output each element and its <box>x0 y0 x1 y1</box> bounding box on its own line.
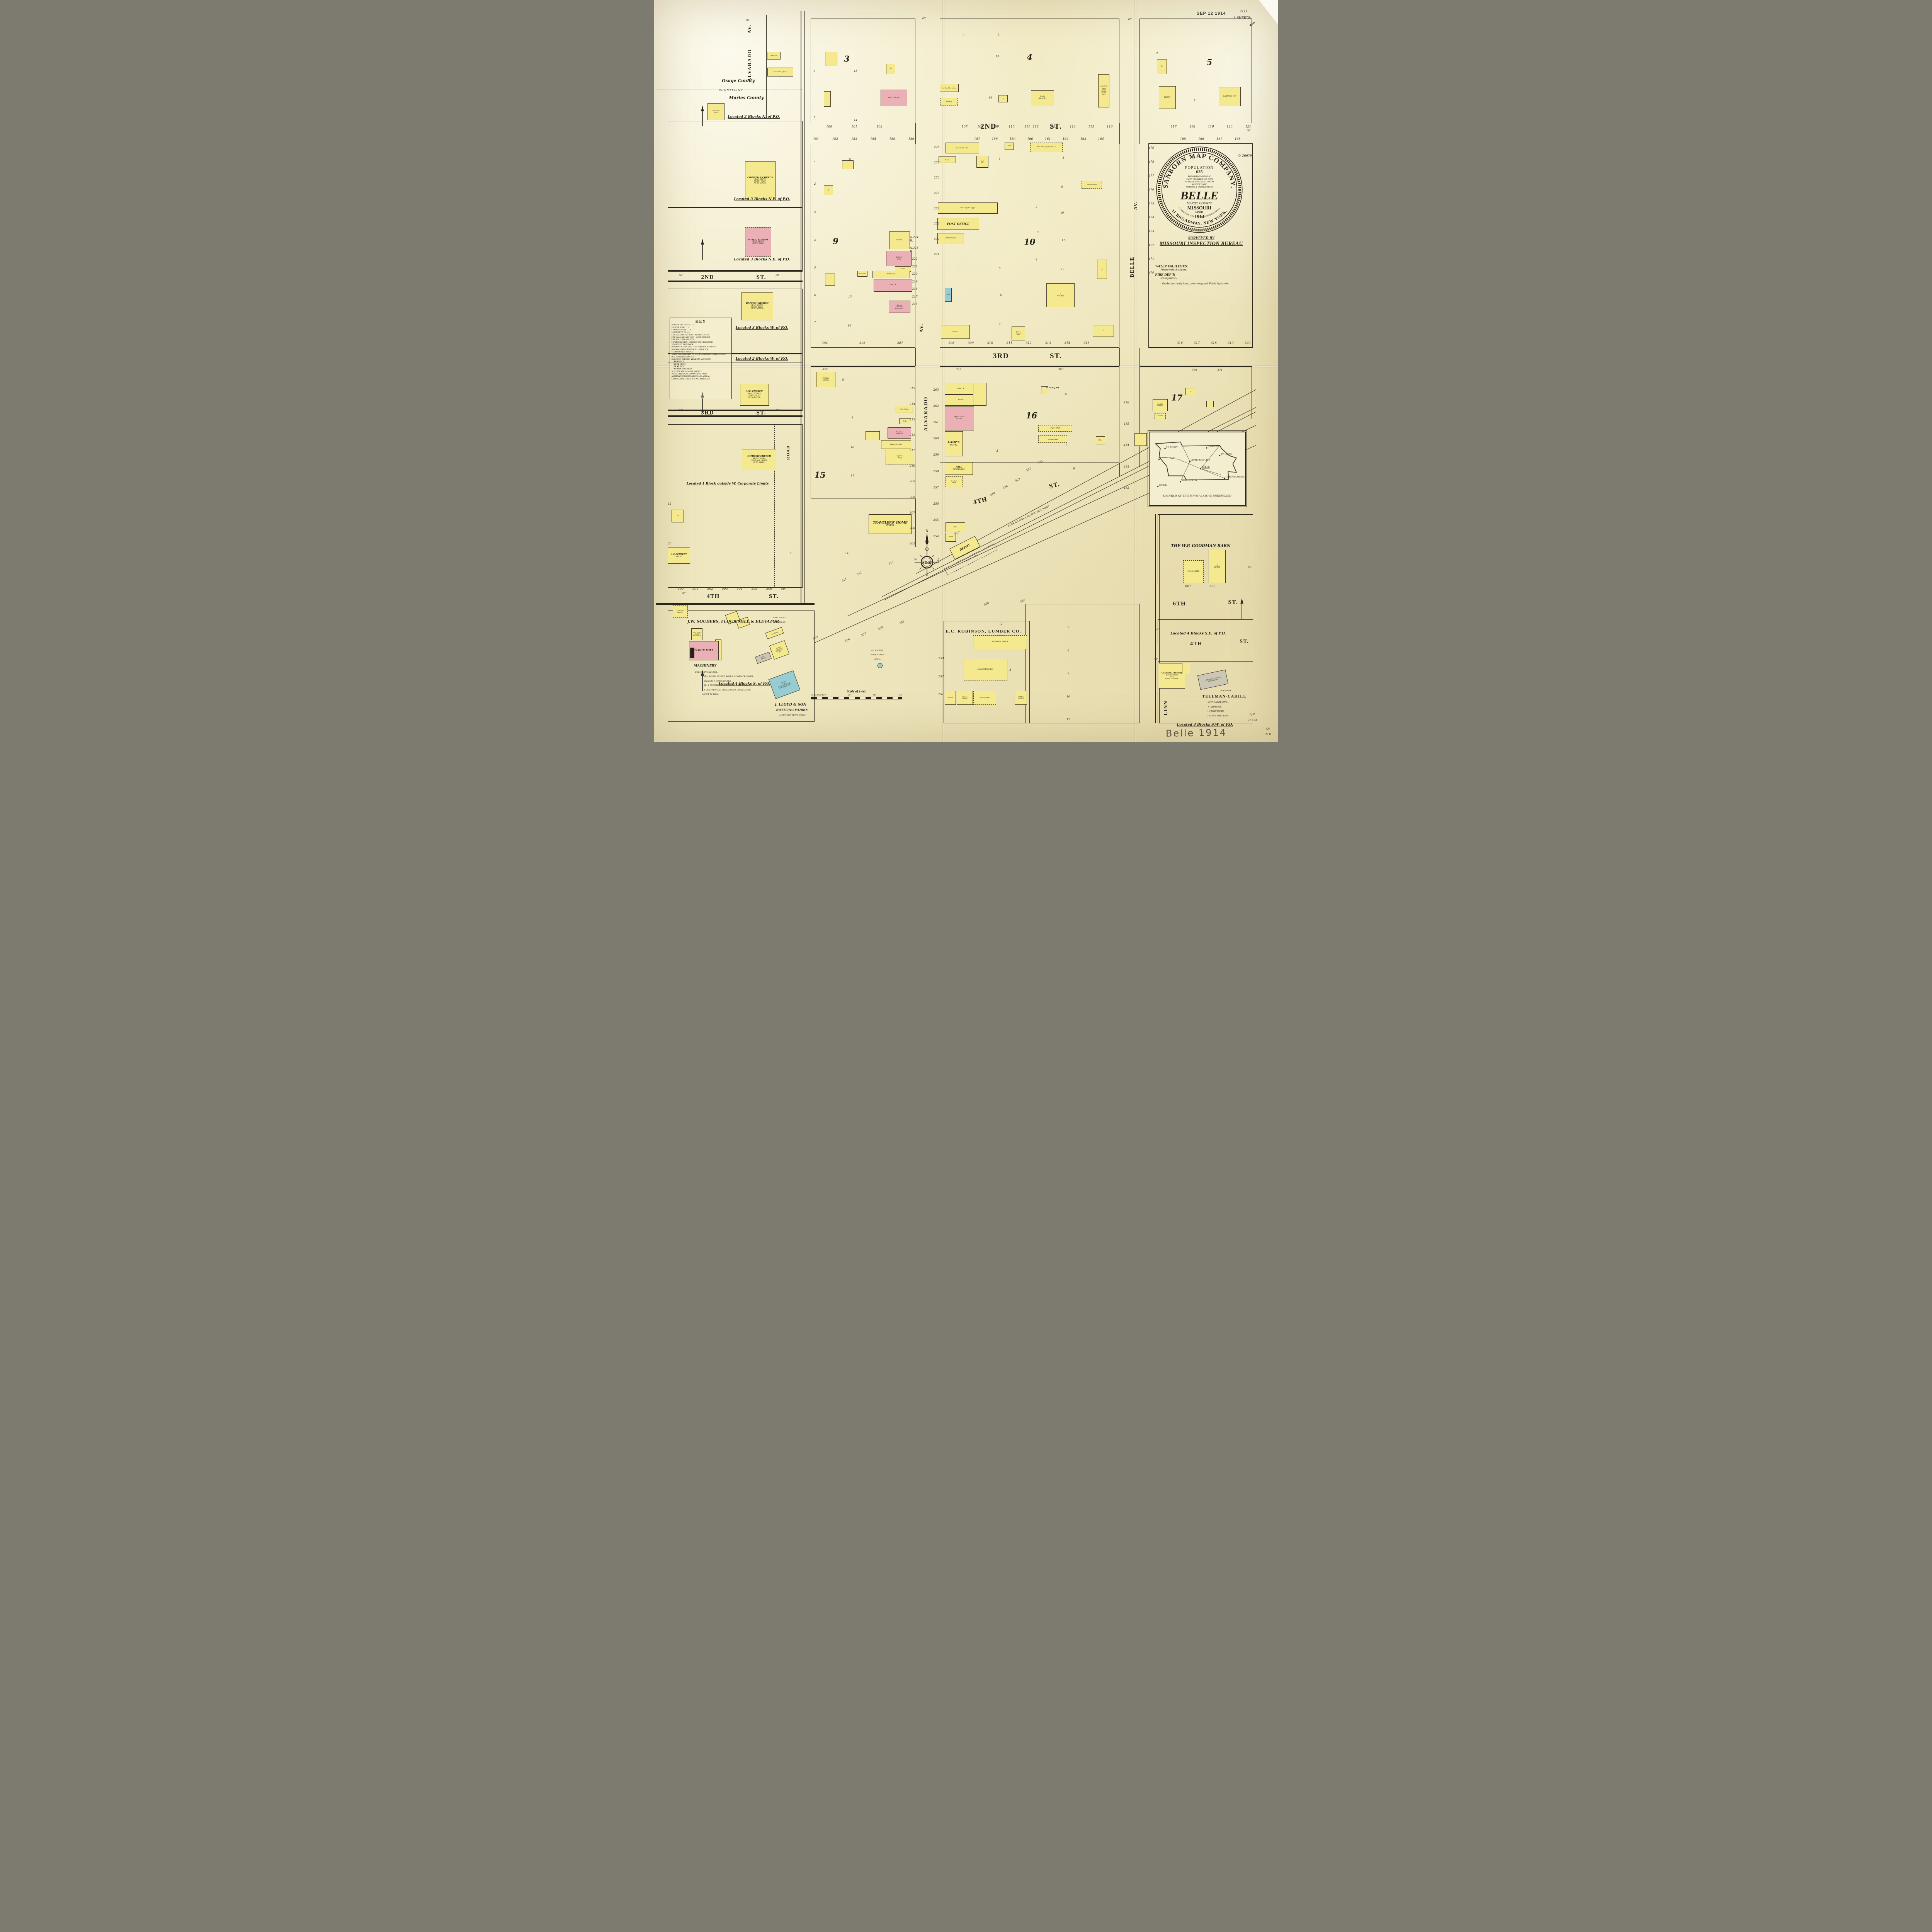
street-number: 412 <box>1124 486 1129 490</box>
lot-number: 13 <box>667 542 671 545</box>
street-number-row: 157158159160161162163164 <box>974 137 1104 143</box>
building: Gen'l S. Ware Ho. <box>946 143 979 154</box>
map-label: 526 <box>1266 728 1270 731</box>
stamp-note: NO STEAM & NO HAND ENGINE <box>1184 181 1214 183</box>
lot-number: 2 <box>814 182 816 185</box>
street-number: 152 <box>832 137 838 143</box>
survey-bureau: MISSOURI INSPECTION BUREAU <box>1153 240 1250 247</box>
street-number: 216 <box>912 302 917 306</box>
building: CARRIAGE HO. <box>1219 87 1241 106</box>
sixty-foot-mark: 60' <box>746 19 750 22</box>
building-label: Bl.Sm. <box>1099 440 1103 441</box>
street-number: 318 <box>1211 341 1216 347</box>
building-label: 2 Hardware <box>946 238 956 240</box>
building: PUBLIC SCHOOLHEAT: STOVE-LIGHT: ELEC.- <box>745 227 771 257</box>
building: CITY LIGHTPLANTDYN.35 K.W. <box>691 628 702 640</box>
building-label: W.Ho <box>897 259 901 260</box>
building-label: Dwgs. <box>952 482 956 483</box>
building-label: LIGHT: ELEC.- <box>752 243 765 245</box>
map-label: 1-CENTRIFUGAL REEL, 2 DUST COLLECTORS, <box>704 689 752 691</box>
building-label: D <box>890 68 891 70</box>
key-footer-line: CONSECUTIVE STREET NO'S ARE ARBITRARY <box>672 378 730 381</box>
compass-rose: N S&M W E S <box>913 529 941 576</box>
building-label: B.Sm. Shop Impl't Storage 2ᴰ <box>1037 146 1056 148</box>
surveyed-by-label: SURVEYED BY <box>1153 236 1250 240</box>
street-number: 259 <box>933 453 939 456</box>
building: Pool <box>946 522 966 532</box>
building-label: Gen'l S. <box>956 418 963 420</box>
street-line <box>915 123 916 144</box>
sixty-foot-mark: 60' <box>776 274 779 277</box>
map-label: 27 B <box>1265 733 1271 736</box>
building: Gen'l S. <box>941 325 969 339</box>
stamp-county: MARIES COUNTY <box>1187 201 1213 205</box>
street-number: 306 <box>859 341 865 347</box>
building-label: P L A T F O R M <box>964 555 978 563</box>
map-label: ROAD <box>786 445 791 460</box>
inset-city: ST. LOUIS <box>1221 453 1232 456</box>
lot-number: 11 <box>851 474 854 477</box>
block-number: 3 <box>844 54 850 63</box>
building-label: CAMP'S <box>948 441 959 444</box>
street-number: 218 <box>912 287 917 291</box>
scale-mark: 150 <box>898 694 901 696</box>
street-number-column: 215214213212211210209208207206205 <box>907 386 917 545</box>
block-outline <box>1158 514 1253 583</box>
street-number: 316 <box>1177 341 1183 347</box>
building: WashHo. <box>976 156 988 168</box>
map-label: ST. <box>757 274 766 281</box>
street-number-column: 479478477476475474473472471470 <box>1146 146 1156 274</box>
sixty-foot-mark: 60' <box>1155 628 1159 631</box>
building-label: D <box>1161 66 1162 68</box>
lot-number: 14 <box>845 552 849 555</box>
street-number: 212 <box>910 433 915 437</box>
street-number: 158 <box>992 137 998 143</box>
lot-number: 1 <box>814 160 816 163</box>
map-label: AV. <box>747 24 753 33</box>
building: Printing <box>940 98 958 105</box>
street-line <box>1155 514 1156 723</box>
north-arrow <box>699 670 706 691</box>
map-label: 322 <box>1026 467 1032 472</box>
building: LUMBER SHED <box>973 635 1027 649</box>
street-number: 251 <box>938 692 944 696</box>
building-label: LIVERY <box>1214 566 1220 568</box>
map-label: ✓ <box>1248 19 1257 31</box>
street-number-row: 316317318319320 <box>1177 341 1251 347</box>
building-label: OFFICE <box>947 697 953 699</box>
street-number: 507 <box>781 587 787 593</box>
street-number: 504 <box>737 587 743 593</box>
building-label: D <box>828 189 829 191</box>
map-label: 1ST: 4 DOUBLESTAND ROLLS, 1-CORN CRUSHER… <box>702 675 754 678</box>
building <box>690 648 694 658</box>
building-label: Impl't Shed <box>1051 427 1060 429</box>
lot-number: 11 <box>1066 718 1070 721</box>
building-label: B.& S. <box>945 159 950 161</box>
block-number: 17 <box>1171 393 1182 403</box>
building-label: D <box>677 515 678 517</box>
building-label: Ware Ho. <box>770 55 777 56</box>
fire-dept-value: not organized.- <box>1160 277 1248 280</box>
map-label: ST. <box>1048 480 1061 490</box>
map-label: AV. <box>1133 201 1139 210</box>
map-label: J.W. SOUDERS, FLOUR MILL & ELEVATOR <box>687 619 779 624</box>
building: PrintingOffices <box>816 372 835 387</box>
map-label: MOUNTAIN MIN'L WATER- <box>779 714 807 716</box>
street-number: 477 <box>1148 174 1154 177</box>
compass-w: W <box>914 558 917 561</box>
lot-number: 5 <box>814 266 816 269</box>
lot-number: 9 <box>1061 185 1063 189</box>
lot-number: 3 <box>1009 668 1011 672</box>
lot-number: 7 <box>999 323 1000 326</box>
map-label: R.I.& P. R.R. <box>871 650 883 652</box>
street-line <box>801 11 801 604</box>
building-label: Barber <box>903 421 908 422</box>
block-number: 5 <box>1207 58 1213 67</box>
street-line <box>656 603 814 605</box>
street-number: 117 <box>1171 125 1177 131</box>
building: 2 <box>1206 401 1214 407</box>
street-number: 315 <box>1083 341 1089 347</box>
street-number: 319 <box>1228 341 1233 347</box>
street-number: 108 <box>977 125 983 131</box>
lot-number: 2 <box>1036 206 1037 209</box>
building-label: W.Ho. <box>901 268 905 270</box>
street-line <box>1159 514 1160 723</box>
lot-number: 2 <box>1001 622 1002 626</box>
lot-number: 6 <box>1065 393 1066 396</box>
street-number: 157 <box>974 137 980 143</box>
building-label: Pool <box>954 526 957 528</box>
building-label: D <box>1190 391 1191 393</box>
street-number: 110 <box>1009 125 1014 131</box>
building: D <box>1093 325 1114 337</box>
map-label: 4TH <box>972 495 988 506</box>
building-label: D <box>1002 98 1003 99</box>
facilities-block: WATER FACILITIES: Private wells & cister… <box>1155 264 1248 285</box>
building-label: BUGGY SHED <box>1188 571 1199 573</box>
map-label: Located 2 Blocks W. of P.O. <box>736 357 788 361</box>
building-label: PRINT'G <box>677 612 683 613</box>
street-line <box>1119 463 1120 476</box>
street-number: 475 <box>1148 202 1154 205</box>
building-label: Harness Shop <box>1087 184 1097 185</box>
map-label: ALVARADO <box>923 396 929 431</box>
map-label: Maries County <box>729 95 764 100</box>
street-number: 160 <box>1027 137 1033 143</box>
building: A.C.GEHLERTHOTEL <box>668 548 690 564</box>
street-number-row: 165166167168 <box>1180 137 1241 143</box>
map-label: CAPC'Y 50 BBLS.- <box>702 693 719 696</box>
map-label: UNDER GR. <box>774 621 786 624</box>
street-number: 276 <box>934 176 939 179</box>
title-stamp: SANBORN MAP COMPANY. 11 BROADWAY, NEW YO… <box>1156 146 1243 233</box>
building: 2D <box>1097 260 1107 279</box>
map-label: 4TH <box>707 593 720 600</box>
scale-bar: Scale of Feet. 50 40 30 20 10 0 50 100 1… <box>811 689 901 699</box>
inset-city: KANSAS CITY <box>1160 457 1176 459</box>
building: POST OFFICE <box>937 218 979 230</box>
building: SCALES <box>1155 413 1166 419</box>
building-label: DOORS <box>962 698 968 699</box>
sixty-foot-mark: 60' <box>1128 18 1132 21</box>
map-label: 3RD <box>993 352 1009 361</box>
map-label: 1-CORN SHELLER.- <box>1207 715 1229 717</box>
street-line <box>915 348 916 366</box>
building <box>866 431 880 440</box>
street-number: 114 <box>1070 125 1076 131</box>
street-number: 111 <box>1024 125 1030 131</box>
street-line <box>940 123 940 144</box>
map-label: C O U N T Y L I N E <box>719 89 743 92</box>
building-label: Gen'l S. <box>957 388 964 390</box>
survey-block: SURVEYED BY MISSOURI INSPECTION BUREAU <box>1153 236 1250 247</box>
building: CAMP'SHOTEL <box>945 431 963 456</box>
street-number: A.223 B. <box>910 246 920 253</box>
building-label: Exchange 2ᴰ <box>895 308 904 309</box>
inset-city: JEFFERSON CITY <box>1191 459 1211 462</box>
street-number-column: 263262261260259258257256255254 <box>931 388 941 538</box>
building-label: Poultry & Eggs <box>961 207 975 209</box>
building: Ware Ho. <box>767 52 781 59</box>
stamp-note: PREVAILING WINDS S.W. <box>1188 175 1211 178</box>
street-number: 313 <box>1045 341 1051 347</box>
building: 1st Hand Furniture <box>940 84 958 92</box>
street-number: 413 <box>1124 465 1129 468</box>
building-label: STABLE <box>1157 405 1163 406</box>
street-number: 473 <box>1148 230 1154 233</box>
street-number: 217 <box>912 295 917 298</box>
building-label: HOTEL <box>950 444 957 446</box>
lot-number: 13 <box>854 70 857 73</box>
street-line <box>1139 123 1140 144</box>
map-label: 2D: 1-PURIFIER, 2 SCOURERS, 1-SEPERATOR.… <box>704 684 752 687</box>
building-label: DILAPIDATED <box>953 469 965 471</box>
street-number: 271 <box>934 252 939 256</box>
grades-note: Grades practically level, streets not pa… <box>1162 282 1248 285</box>
street-number-column: A.224 B.A.223 B.222221220219218217216 <box>910 235 920 306</box>
scale-marks: 50 40 30 20 10 0 50 100 150 <box>811 694 901 696</box>
scale-bar-rule <box>811 697 901 699</box>
street-number: 311 <box>1007 341 1012 347</box>
map-label: 565 <box>1020 599 1026 604</box>
map-key: KEY NUMBER OF STORIES ..... 3SHINGLE ROO… <box>670 318 732 399</box>
map-label: Located 3 Blocks W. of P.O. <box>736 326 788 330</box>
scale-mark: 100 <box>873 694 876 696</box>
street-number: 474 <box>1148 216 1154 219</box>
street-number: 476 <box>1148 188 1154 191</box>
street-number: 165 <box>1180 137 1186 143</box>
street-number-row: 151152153154155156 <box>813 137 914 143</box>
building: Bakery & Mill'y <box>881 440 911 449</box>
building: SASH &DOORS <box>957 691 973 705</box>
street-number: 310 <box>987 341 993 347</box>
street-number: 501 <box>692 587 698 593</box>
inset-city: ST. JOSEPH <box>1166 446 1179 449</box>
map-label: BOTTLING WORKS <box>776 708 808 712</box>
street-number: 308 <box>949 341 954 347</box>
map-label: 1-FLINT BURR.- <box>1207 710 1225 713</box>
street-number: 261 <box>933 420 939 424</box>
street-number: 211 <box>910 449 915 452</box>
scale-label: Scale of Feet. <box>811 689 901 693</box>
street-number: 159 <box>1010 137 1015 143</box>
map-label: (ELEV.) <box>874 658 881 661</box>
building: D <box>886 64 895 74</box>
lot-number: 3 <box>1037 231 1038 234</box>
street-line <box>1139 348 1140 366</box>
lot-number: 4 <box>1036 258 1037 261</box>
building: CHRISTIAN CHURCHHEAT: STOVE.-LIGHT: ELEC… <box>745 161 776 201</box>
map-label: LINN <box>1163 700 1169 715</box>
building-label: Gen'l S. <box>952 331 959 333</box>
street-number-row: 117118119120121 <box>1171 125 1251 131</box>
inset-city: CAPE GIRARDEAU <box>1226 476 1245 478</box>
map-label: 363 <box>1058 368 1063 371</box>
stamp-note: WATER FACILITIES SEE NOTE <box>1185 178 1213 180</box>
building: Impl'tWare Ho. <box>1031 90 1054 106</box>
building-label: Bakery & Mill'y <box>890 444 902 445</box>
building: Conf'y &Dwgs. <box>946 476 963 488</box>
stamp-town: BELLE <box>1180 189 1218 202</box>
building-label: 1st Hand Furniture <box>942 87 956 89</box>
street-number-column: 416415414413412 <box>1121 401 1131 490</box>
map-label: TOWN JAIL <box>1046 387 1060 389</box>
key-title: KEY <box>672 319 730 325</box>
stamp-year: 1914 <box>1195 214 1204 219</box>
map-label: Belle 1914 <box>1166 727 1227 739</box>
lot-number: 6 <box>998 33 999 36</box>
map-label: Osage County <box>722 78 755 83</box>
sanborn-map-sheet: Gen'l MdseDGen'l Mdse (JR.CL.)Ware Ho.PR… <box>654 0 1278 742</box>
street-line <box>732 15 732 119</box>
building-label: Gen'l S. <box>896 240 903 241</box>
building: Gen'l S.W.Ho <box>886 251 912 266</box>
water-tank <box>878 663 883 668</box>
map-label: SEP 12 1914 <box>1197 11 1226 16</box>
street-number: 252 <box>938 675 944 678</box>
map-label: Located 2 Blocks N. of P.O. <box>728 115 780 119</box>
key-colors: BUILDINGS COLORED YELLOW ARE FRAME" RED … <box>672 359 730 371</box>
lot-number: 6 <box>813 70 815 73</box>
map-label: Located 3 Blocks N.E. of P.O. <box>734 258 790 262</box>
building-label: Jew'y <box>947 294 950 296</box>
street-line <box>804 11 805 604</box>
lot-number: 8 <box>1068 649 1069 652</box>
street-line <box>766 15 767 119</box>
map-label: 1-PACKER, 1-CORN ROLLER, <box>702 680 732 682</box>
key-items: NUMBER OF STORIES ..... 3SHINGLE ROOF ..… <box>672 324 730 359</box>
building-label: DYN.35 K.W. <box>693 635 701 636</box>
street-number-row: 100101102 <box>826 125 882 131</box>
building-label: LIVERY <box>1164 97 1170 99</box>
street-number: 320 <box>1245 341 1250 347</box>
building: B.Sm. Shop Impl't Storage 2ᴰ <box>1030 143 1063 152</box>
street-line <box>1119 348 1120 366</box>
street-number: 112 <box>1033 125 1039 131</box>
key-footer: ⑤ ㉗ INDICATE RELATIVE HEIGHTS✚ FIRE STAT… <box>672 371 730 381</box>
street-number: 156 <box>908 137 914 143</box>
street-number: 220 <box>912 272 917 276</box>
building-label: PLATFORM <box>770 631 779 635</box>
street-line <box>940 348 940 366</box>
block-outline <box>1139 366 1252 419</box>
map-label: 560 <box>984 602 990 607</box>
street-number: 116 <box>1107 125 1112 131</box>
street-number: 503 <box>722 587 728 593</box>
lot-number: 14 <box>989 96 992 99</box>
lot-number: 7 <box>1066 444 1067 447</box>
building-label: Ho. <box>981 162 984 163</box>
street-number: 257 <box>933 486 939 489</box>
building: 2PRIVATE <box>1046 283 1075 307</box>
sixty-foot-mark: 60' <box>1248 565 1252 568</box>
street-number: 471 <box>1148 257 1154 260</box>
building-label: 18' TO EAVES.- <box>751 308 764 310</box>
street-number: 102 <box>876 125 882 131</box>
street-number: 278 <box>934 145 939 149</box>
building-label: Ware Ho. <box>1039 98 1047 100</box>
building: OFFICE <box>945 691 956 705</box>
sixty-foot-mark: 60' <box>776 409 779 412</box>
map-label: 556 <box>844 638 850 643</box>
lot-number: 12 <box>668 502 671 505</box>
map-label: 353 <box>956 368 961 371</box>
street-number: 155 <box>889 137 895 143</box>
stamp-note: NO HOSE CARTS <box>1191 184 1207 186</box>
sixty-foot-mark: 60' <box>679 274 683 277</box>
building-label: private sheds <box>1048 439 1058 440</box>
map-label: ALVARADO <box>747 49 753 82</box>
lot-number: 7 <box>1068 626 1069 629</box>
lot-number: 9 <box>1073 467 1075 470</box>
building: D <box>1185 388 1195 395</box>
map-label: 558 <box>878 626 883 631</box>
building: I.O.O.F.HALLHEAT:STOVE-LIGHT:ELEC- <box>1098 74 1109 107</box>
map-label: ST. <box>1228 599 1238 606</box>
building-label: HOTEL <box>886 524 895 527</box>
map-label: MACHINERY <box>694 663 716 667</box>
scale-mark: 50 <box>848 694 850 696</box>
water-facilities-value: Private wells & cisterns.- <box>1160 268 1248 271</box>
lot-number: 5 <box>999 267 1000 270</box>
map-label: 1-CHOPPER.- <box>1207 706 1222 708</box>
street-number: 119 <box>1208 125 1214 131</box>
lot-number: 4 <box>814 239 816 242</box>
map-label: TELLMAN-CAHILL <box>1202 694 1246 699</box>
building <box>1134 433 1147 446</box>
water-facilities-label: WATER FACILITIES: <box>1155 264 1248 268</box>
compass-e: E <box>937 558 939 561</box>
map-label: ST. <box>769 593 779 600</box>
building <box>842 160 854 169</box>
building-label: 2 <box>1209 403 1210 405</box>
street-number: 415 <box>1124 422 1129 425</box>
sixty-foot-mark: 60' <box>1155 657 1158 660</box>
building: Gen'l S. <box>874 279 912 292</box>
street-number-row: 308309310311312313314315 <box>949 341 1090 347</box>
building-label: ENG. <box>778 651 782 653</box>
street-number: 154 <box>870 137 876 143</box>
lot-number: 3 <box>814 211 816 214</box>
building: Poultry & Eggs <box>938 202 998 214</box>
street-number: 166 <box>1198 137 1204 143</box>
lot-number: 15 <box>848 295 852 298</box>
map-label: ST. <box>1050 352 1062 361</box>
